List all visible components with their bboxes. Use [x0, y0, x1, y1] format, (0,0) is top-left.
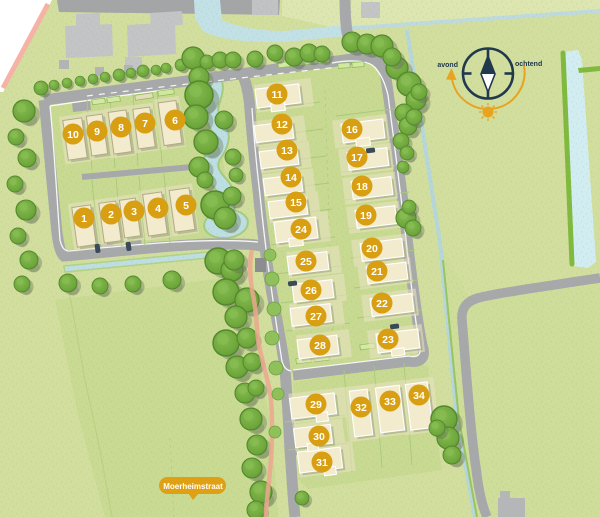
svg-text:21: 21 [371, 266, 383, 278]
svg-text:8: 8 [118, 122, 124, 134]
svg-text:31: 31 [316, 457, 328, 469]
svg-text:22: 22 [376, 298, 388, 310]
svg-text:18: 18 [356, 181, 368, 193]
svg-text:17: 17 [351, 152, 363, 164]
svg-text:33: 33 [384, 396, 396, 408]
svg-text:14: 14 [285, 172, 297, 184]
svg-text:29: 29 [310, 399, 322, 411]
svg-text:28: 28 [314, 340, 326, 352]
svg-text:11: 11 [271, 89, 282, 101]
svg-text:26: 26 [305, 285, 317, 297]
svg-text:avond: avond [437, 62, 458, 69]
svg-text:24: 24 [295, 224, 307, 236]
svg-text:ochtend: ochtend [515, 61, 542, 68]
svg-text:16: 16 [346, 124, 358, 136]
svg-text:12: 12 [276, 119, 288, 131]
svg-text:9: 9 [94, 126, 100, 138]
svg-text:27: 27 [310, 311, 322, 323]
svg-text:13: 13 [281, 145, 293, 157]
svg-text:15: 15 [290, 197, 302, 209]
svg-text:30: 30 [313, 431, 325, 443]
svg-text:3: 3 [131, 206, 137, 218]
svg-text:7: 7 [142, 118, 148, 130]
svg-text:34: 34 [413, 390, 425, 402]
svg-text:25: 25 [300, 256, 312, 268]
svg-text:10: 10 [67, 129, 79, 141]
svg-text:2: 2 [108, 209, 114, 221]
svg-text:19: 19 [360, 210, 372, 222]
svg-text:5: 5 [183, 200, 189, 212]
svg-text:6: 6 [172, 115, 178, 127]
svg-text:Moerheimstraat: Moerheimstraat [163, 482, 223, 491]
svg-text:1: 1 [81, 213, 87, 225]
svg-text:20: 20 [366, 243, 378, 255]
svg-text:23: 23 [382, 334, 394, 346]
svg-text:4: 4 [155, 203, 161, 215]
svg-text:32: 32 [355, 402, 367, 414]
